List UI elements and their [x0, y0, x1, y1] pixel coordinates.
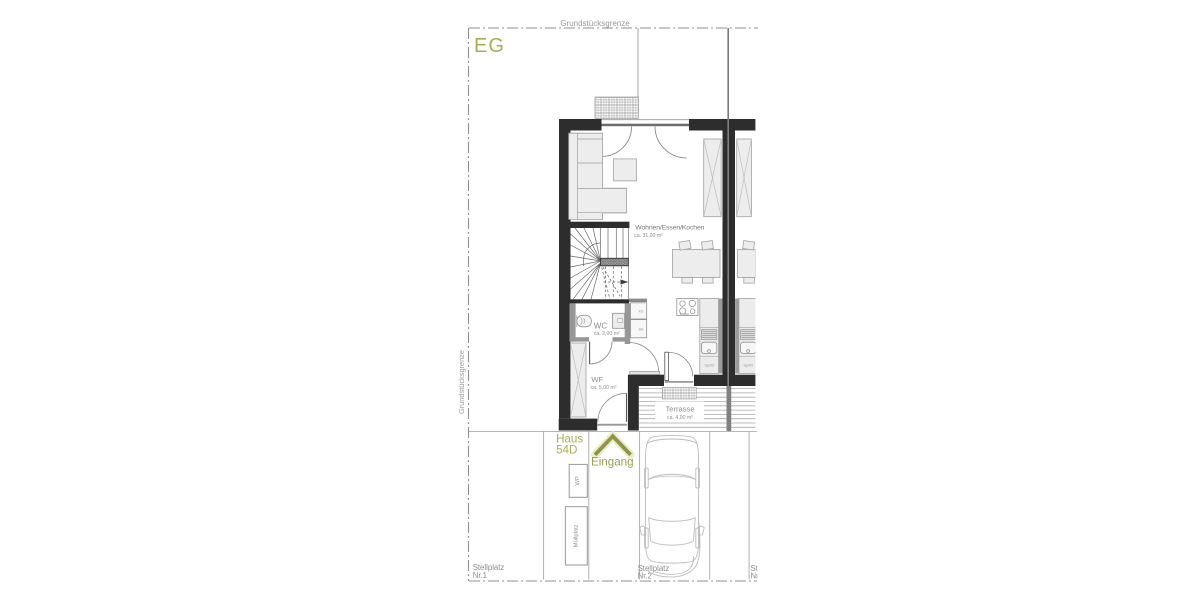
svg-text:EG: EG	[474, 35, 505, 57]
svg-text:Grundstücksgrenze: Grundstücksgrenze	[560, 19, 630, 28]
svg-text:KS: KS	[639, 310, 644, 314]
svg-text:Terrasse: Terrasse	[665, 405, 694, 414]
svg-text:Nr.2: Nr.2	[638, 572, 652, 581]
svg-text:ca. 5,00 m²: ca. 5,00 m²	[591, 385, 617, 391]
svg-text:ca. 4,00 m²: ca. 4,00 m²	[667, 415, 693, 421]
svg-text:Sp/M: Sp/M	[704, 363, 713, 368]
svg-text:BA: BA	[639, 328, 644, 332]
svg-text:WP: WP	[575, 476, 581, 485]
svg-text:Sp/M: Sp/M	[743, 363, 752, 368]
svg-text:Müllplatz: Müllplatz	[573, 524, 579, 547]
svg-text:WC: WC	[594, 321, 608, 330]
svg-text:Nr.1: Nr.1	[473, 571, 487, 580]
svg-text:Wohnen/Essen/Kochen: Wohnen/Essen/Kochen	[635, 224, 704, 231]
svg-text:Grundstücksgrenze: Grundstücksgrenze	[457, 350, 466, 414]
svg-text:ca. 2,00 m²: ca. 2,00 m²	[594, 331, 620, 337]
svg-text:WF: WF	[591, 375, 603, 384]
svg-text:54D: 54D	[556, 444, 577, 457]
svg-text:ca. 31,00 m²: ca. 31,00 m²	[634, 233, 663, 239]
svg-text:Eingang: Eingang	[591, 456, 634, 469]
